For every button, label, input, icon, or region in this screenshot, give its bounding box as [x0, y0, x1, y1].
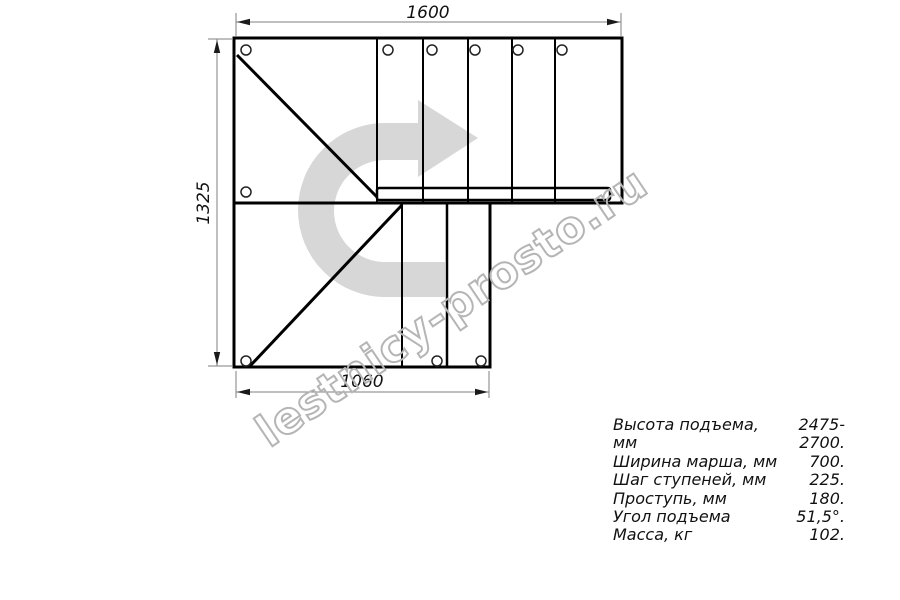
spec-row-mass: Масса, кг 102. [613, 526, 845, 544]
spec-label: Угол подъема [613, 508, 731, 526]
spec-label: Высота подъема, мм [613, 416, 765, 453]
dimension-left-height-label: 1325 [194, 181, 214, 224]
dimension-bottom-width-label: 1060 [340, 372, 383, 392]
dimension-left-height: 1325 [194, 39, 232, 366]
spec-value: 225. [809, 471, 845, 489]
spec-value: 51,5°. [796, 508, 845, 526]
stair-direction-arrow-icon [298, 100, 478, 297]
spec-table: Высота подъема, мм 2475-2700. Ширина мар… [613, 416, 845, 545]
spec-label: Масса, кг [613, 526, 692, 544]
mount-holes [241, 45, 567, 366]
spec-row-flight-width: Ширина марша, мм 700. [613, 453, 845, 471]
spec-row-height: Высота подъема, мм 2475-2700. [613, 416, 845, 453]
spec-row-step-pitch: Шаг ступеней, мм 225. [613, 471, 845, 489]
spec-value: 2475-2700. [765, 416, 845, 453]
dimension-top-width: 1600 [236, 3, 621, 36]
spec-row-tread: Проступь, мм 180. [613, 490, 845, 508]
spec-label: Проступь, мм [613, 490, 727, 508]
dimension-bottom-width: 1060 [236, 371, 489, 398]
upper-flight-tread-bar [377, 188, 610, 200]
spec-label: Шаг ступеней, мм [613, 471, 766, 489]
spec-label: Ширина марша, мм [613, 453, 777, 471]
spec-row-angle: Угол подъема 51,5°. [613, 508, 845, 526]
spec-value: 102. [809, 526, 845, 544]
stair-plan-drawing: 1600 1325 [0, 0, 900, 600]
spec-value: 180. [809, 490, 845, 508]
spec-value: 700. [809, 453, 845, 471]
dimension-top-width-label: 1600 [406, 3, 449, 23]
